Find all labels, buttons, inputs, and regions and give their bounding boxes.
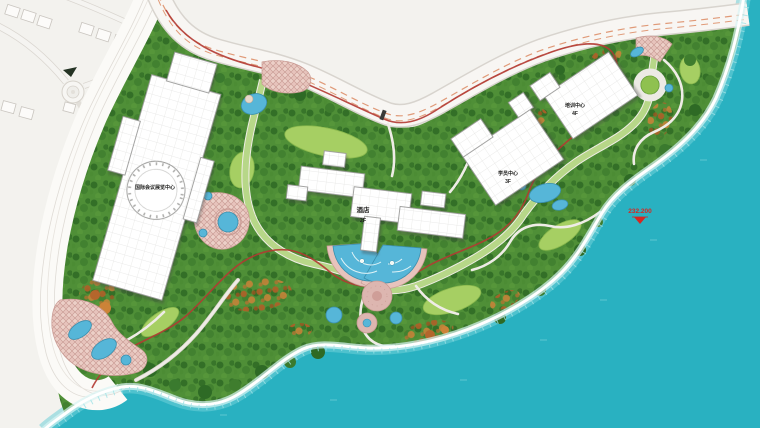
south-pond	[326, 307, 342, 323]
offsite-roundabout	[62, 81, 84, 103]
hotel-floors-label: 2F	[360, 218, 367, 224]
site-plan-drawing: 国际会议展览中心 酒店 2F 学员中心 3F 培训中心 4F 232.200	[0, 0, 760, 428]
fountain-island	[245, 95, 253, 103]
training-center-label: 培训中心	[565, 102, 585, 109]
trainee-center-label: 学员中心	[498, 170, 518, 177]
ring-plaza	[357, 313, 377, 333]
water-level-value: 232.200	[628, 208, 652, 215]
northeast-roundabout	[637, 72, 663, 98]
radial-plaza	[362, 281, 392, 311]
hotel-label: 酒店	[357, 205, 371, 214]
master-plan-canvas: 国际会议展览中心 酒店 2F 学员中心 3F 培训中心 4F 232.200	[0, 0, 760, 428]
training-center-floors-label: 4F	[572, 111, 578, 117]
west-fountain-icon	[360, 259, 365, 264]
conference-center-label: 国际会议展览中心	[135, 184, 175, 191]
flower-pond	[218, 212, 238, 232]
trainee-center-floors-label: 3F	[505, 179, 511, 185]
east-fountain-icon	[390, 261, 395, 266]
